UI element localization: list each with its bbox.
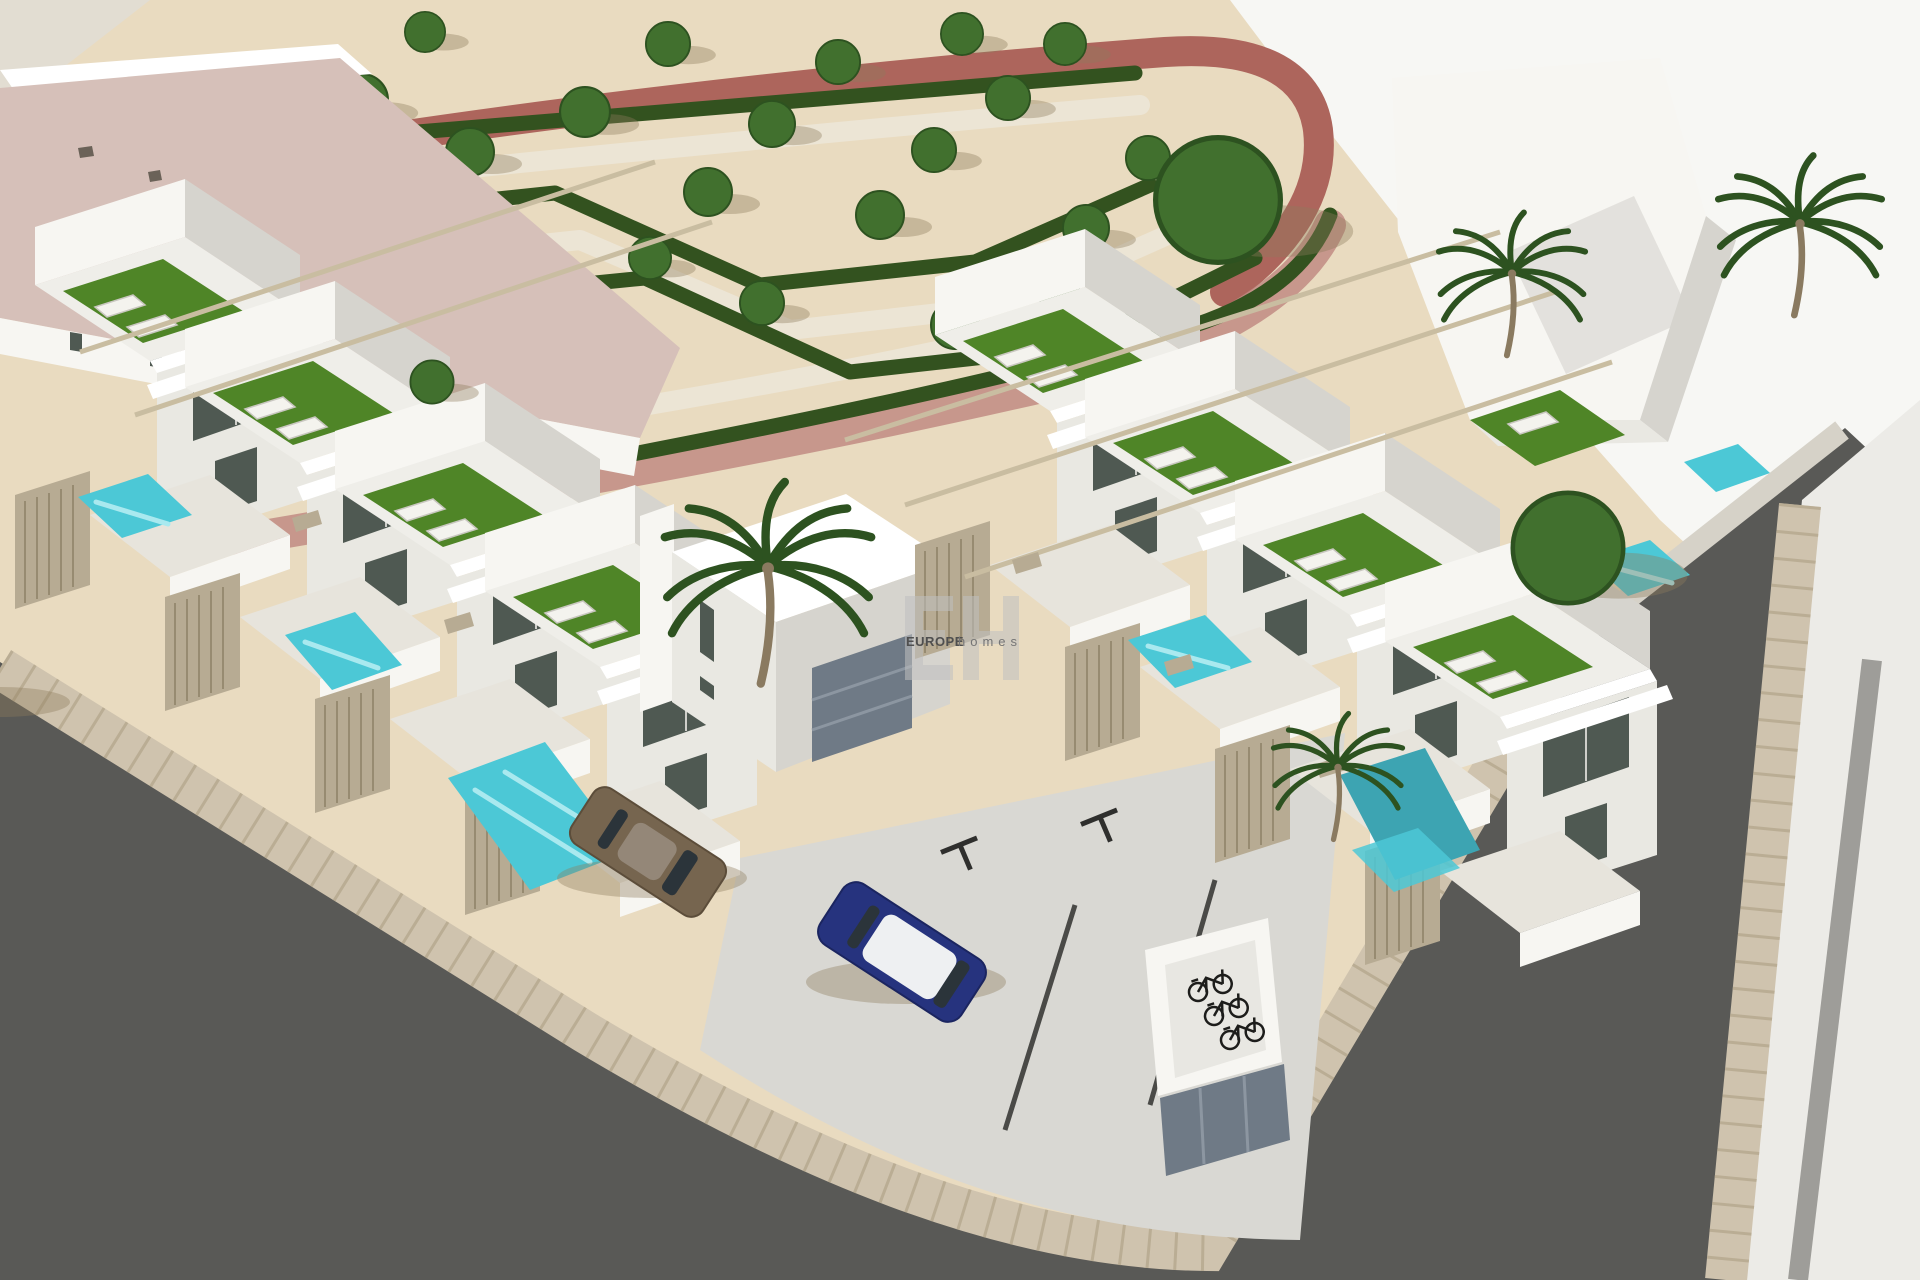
watermark-brand: EUROPE (906, 634, 964, 649)
watermark: EUROPE homes (905, 596, 1022, 680)
bicycle-shelter (1145, 918, 1290, 1176)
watermark-brand-suffix: homes (958, 634, 1022, 649)
render-canvas: EUROPE homes (0, 0, 1920, 1280)
slit-window (700, 600, 714, 662)
